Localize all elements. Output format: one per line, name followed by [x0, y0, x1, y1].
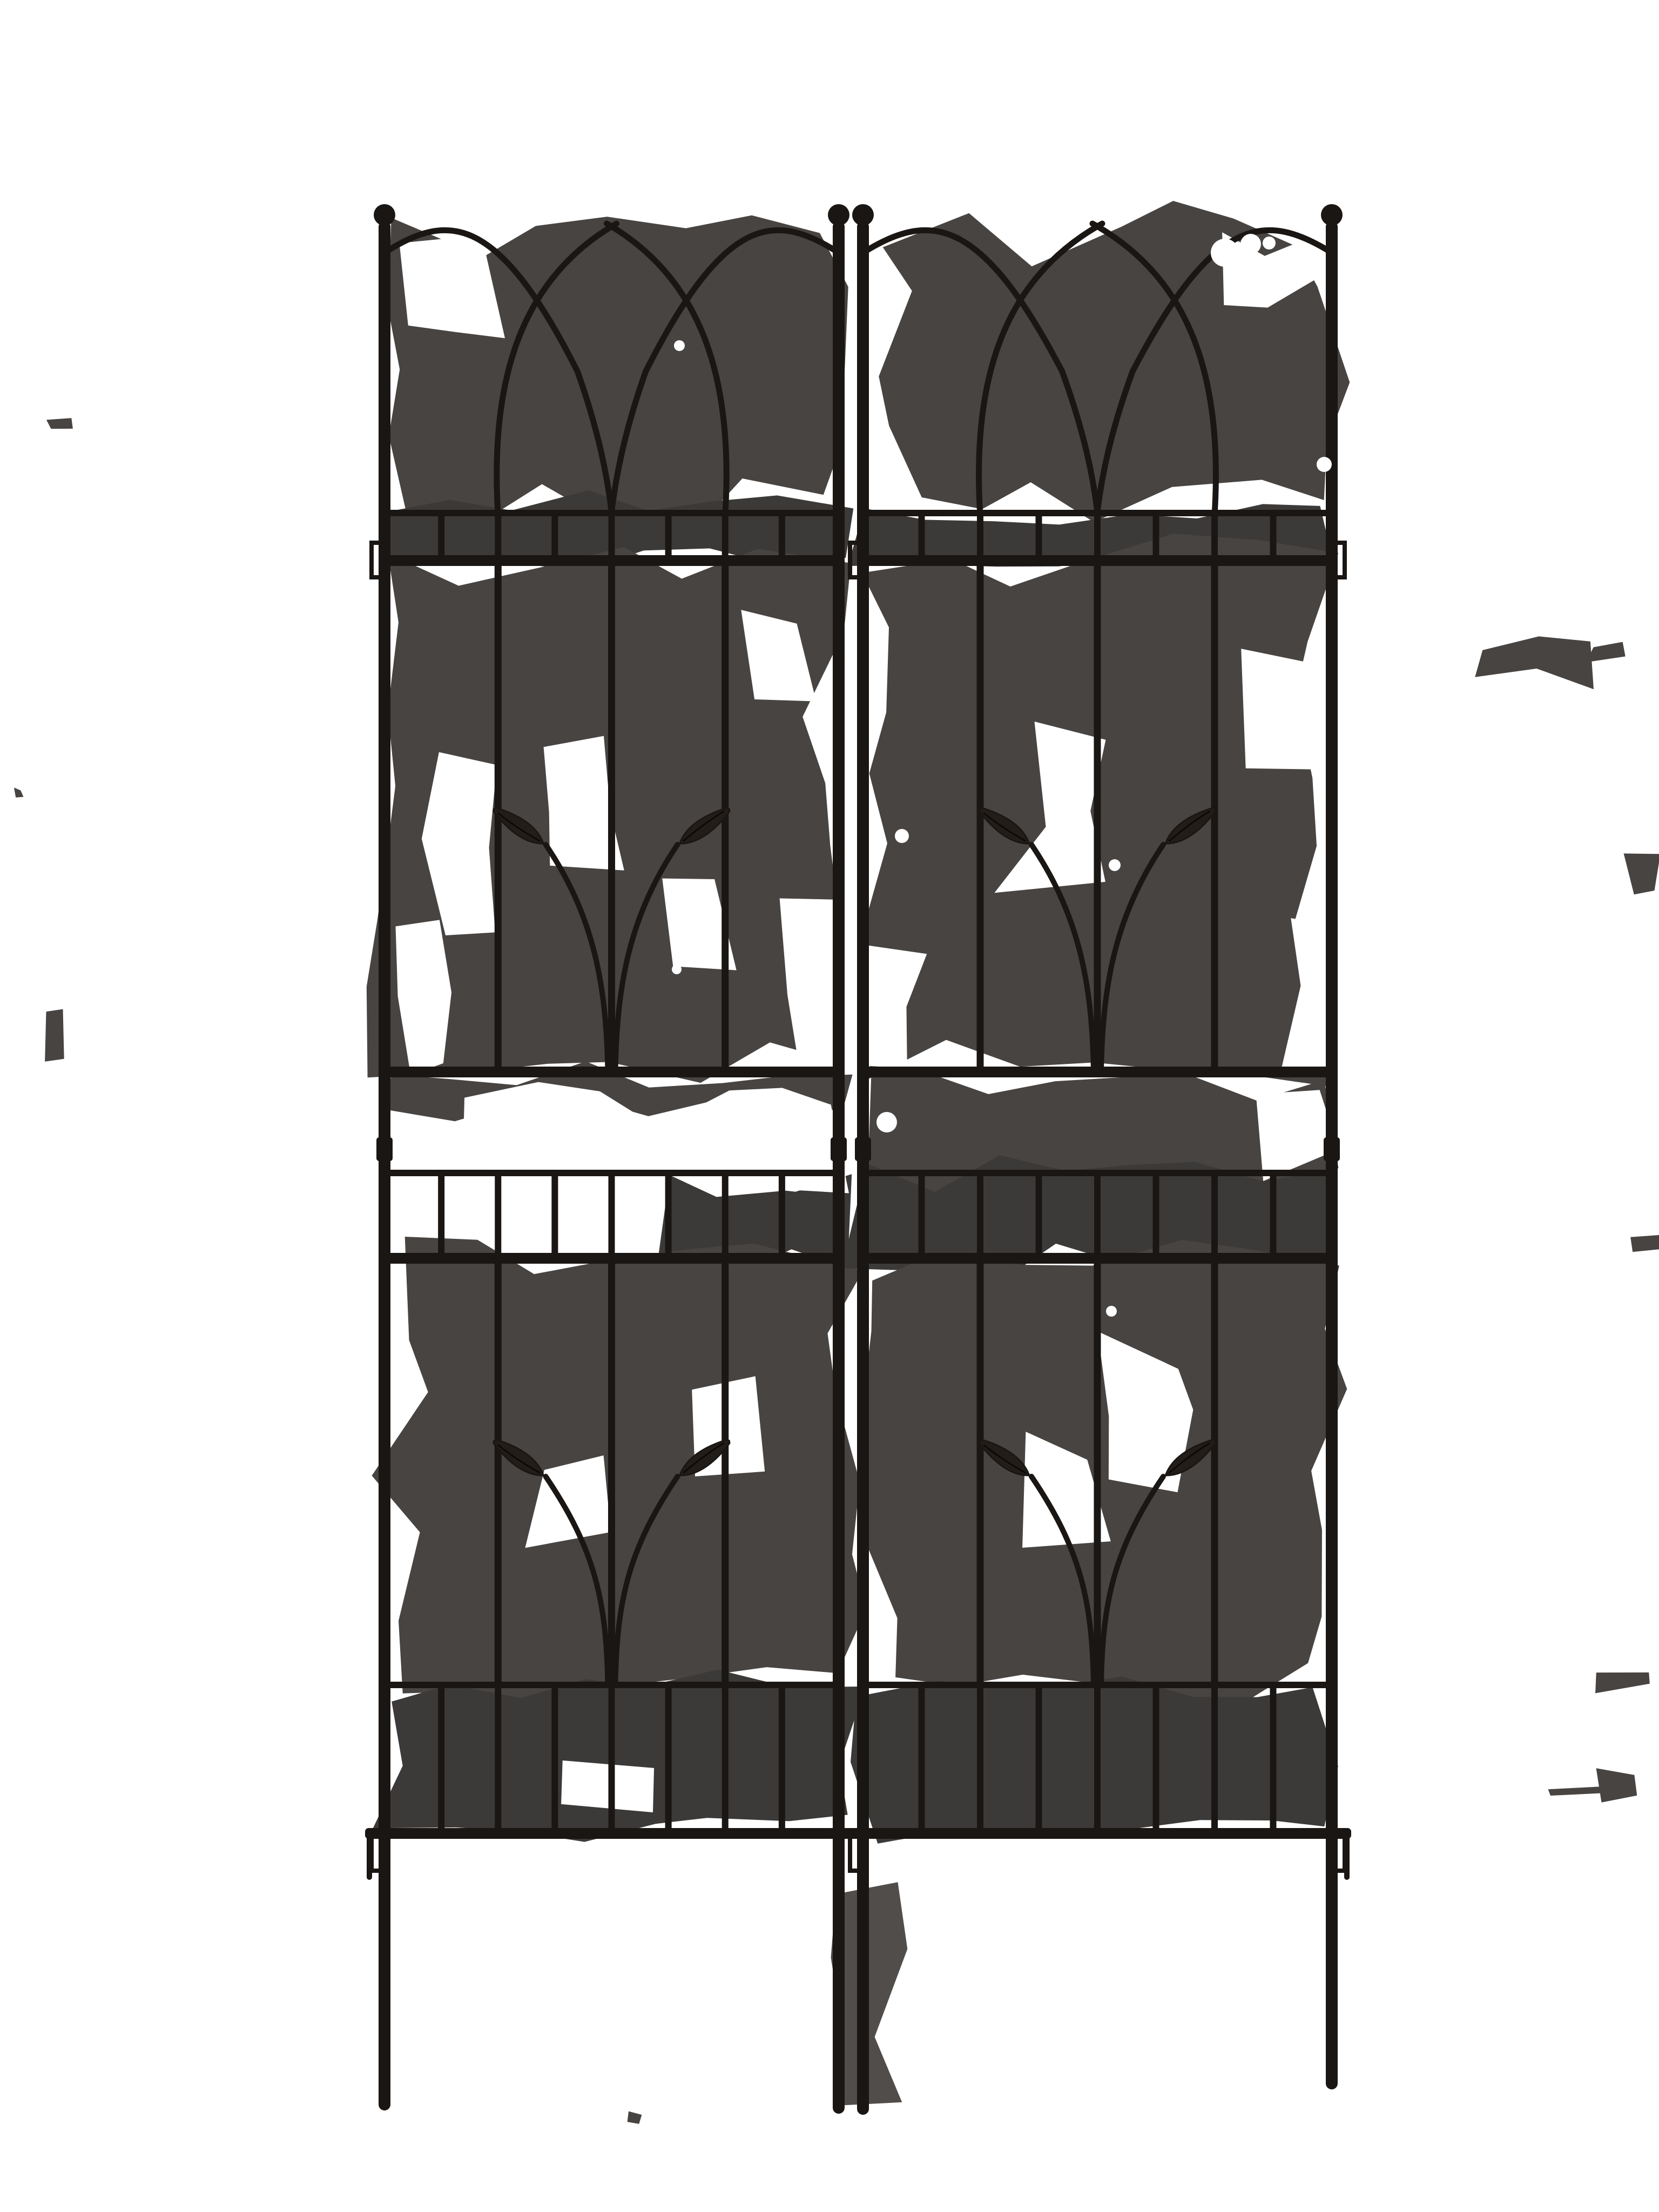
post-joint-sleeve — [831, 1137, 847, 1161]
post-joint-sleeve — [855, 1137, 871, 1161]
artifact-white-gap — [561, 1761, 654, 1812]
post-joint-sleeve — [1324, 1137, 1340, 1161]
ball-finial — [1321, 204, 1343, 226]
white-highlight-dot — [876, 1112, 897, 1132]
ball-finial — [852, 204, 874, 226]
ball-finial — [828, 204, 849, 226]
artifact-speck — [45, 1009, 64, 1062]
artifact-blob — [1630, 1235, 1659, 1252]
white-highlight-dot — [1263, 237, 1276, 249]
white-highlight-dot — [672, 965, 682, 974]
artifact-blob — [373, 1670, 866, 1842]
white-highlight-dot — [1211, 239, 1239, 267]
white-highlight-dot — [1106, 1306, 1117, 1317]
white-highlight-dot — [1317, 457, 1332, 472]
thick-rail — [365, 1828, 858, 1839]
thick-rail — [860, 1067, 1335, 1077]
thin-rail — [381, 1170, 842, 1176]
artifact-speck — [46, 418, 73, 429]
white-highlight-dot — [674, 340, 685, 351]
thick-rail — [860, 1253, 1335, 1264]
white-highlight-dot — [1240, 234, 1261, 254]
thin-rail — [860, 1682, 1335, 1688]
white-highlight-dot — [895, 829, 909, 843]
thick-rail — [381, 555, 842, 566]
white-highlight-dot — [1109, 859, 1121, 871]
post-joint-sleeve — [376, 1137, 393, 1161]
trellis-product-photo — [0, 0, 1659, 2212]
thin-rail — [381, 510, 842, 516]
thick-rail — [381, 1253, 842, 1264]
thick-rail — [860, 555, 1335, 566]
product-photo-stage: Black metal garden trellis fence panels … — [0, 0, 1659, 2212]
thin-rail — [860, 510, 1335, 516]
thin-rail — [381, 1682, 842, 1688]
thin-rail — [860, 1170, 1335, 1176]
ball-finial — [374, 204, 395, 226]
thick-rail — [381, 1067, 842, 1077]
thick-rail — [844, 1828, 1351, 1839]
artifact-white-gap — [1241, 649, 1323, 770]
artifact-blob — [879, 201, 1350, 522]
